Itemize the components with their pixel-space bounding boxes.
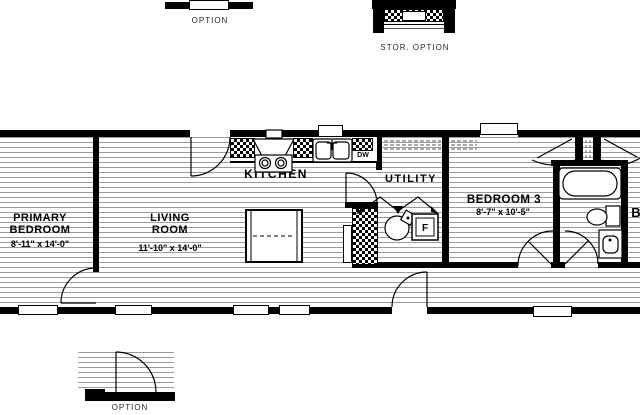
top-wall [518,130,640,137]
storage-option-right-leg [444,9,455,33]
primary-living-divider-wall [93,137,99,272]
living-room-name-line2: ROOM [135,225,205,237]
storage-option-opening [402,11,426,21]
storage-option-top-bar [372,0,456,9]
bottom-wall [58,307,115,314]
top-wall [230,130,318,137]
door-option-wall-step [85,389,105,393]
utility-side-cabinet [343,225,352,263]
door-option-floor-hatching [78,352,174,392]
primary-bedroom-name-line1: PRIMARY [0,213,80,225]
bedroom3-left-wall [442,137,449,268]
bedroom-window [18,305,58,315]
living-room-label: LIVING ROOM [135,213,205,236]
closet-area-window [480,123,518,135]
living-room-window [233,305,269,315]
hall-wall [598,262,640,268]
bottom-wall [0,307,18,314]
bottom-wall [572,307,640,314]
kitchen-island [245,209,303,263]
rear-door-step [533,306,572,317]
window-option-label: OPTION [172,17,248,25]
primary-bedroom-label: PRIMARY BEDROOM [0,213,80,236]
storage-option-shelf-line [384,24,444,25]
door-option-label: OPTION [100,404,160,412]
living-room-name-line1: LIVING [135,213,205,225]
floor-plan: OPTION STOR. OPTION DW [0,0,640,415]
top-wall [0,130,190,137]
primary-bedroom-dims: 8'-11" x 14'-0" [0,240,80,249]
living-room-window [279,305,310,315]
bottom-wall [310,307,392,314]
bedroom3-label: BEDROOM 3 [458,194,550,206]
door-option-wall [85,392,175,401]
bottom-wall [269,307,279,314]
kitchen-counter-hatch [293,138,313,158]
utility-label: UTILITY [381,174,441,186]
bedroom-window [115,305,152,315]
dishwasher-counter-hatch [352,138,373,151]
primary-bedroom-name-line2: BEDROOM [0,225,80,237]
bathroom-left-wall [553,160,560,262]
kitchen-label: KITCHEN [240,168,312,181]
storage-option-shelf-line2 [384,28,444,29]
adjacent-bedroom-partial-label: B [630,206,640,220]
storage-option-label: STOR. OPTION [368,44,462,52]
bottom-wall [427,307,533,314]
hall-wall [551,262,565,268]
storage-option-left-leg [373,9,384,33]
dishwasher-label: DW [352,152,374,159]
utility-pantry-cabinet [352,208,378,265]
closet-divider-wall [575,137,583,162]
top-wall [343,130,480,137]
living-room-dims: 11'-10" x 14'-0" [125,244,215,253]
kitchen-sink-window [318,125,343,137]
option-window [189,0,229,10]
closet-divider-wall [593,137,601,162]
bottom-wall [152,307,233,314]
kitchen-counter-hatch [230,138,255,158]
bedroom3-dims: 8'-7" x 10'-5" [462,208,544,217]
bathroom-right-wall [621,160,628,268]
bathroom-top-wall [551,160,628,166]
